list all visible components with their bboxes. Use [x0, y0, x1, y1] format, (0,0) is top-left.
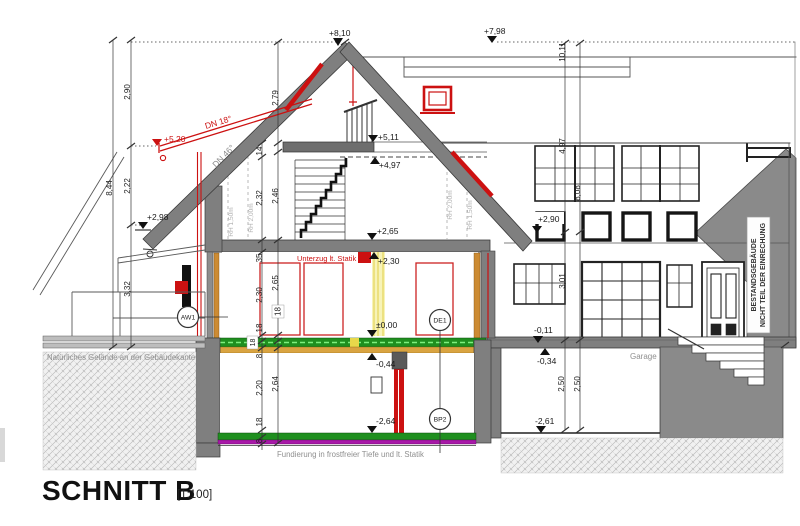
- marker-520: [152, 139, 162, 146]
- dim-chain-a-8: 8: [255, 438, 264, 443]
- unterzug-note: Unterzug lt. Statik: [297, 254, 356, 263]
- dim-total-height: 8,44: [105, 180, 114, 196]
- level-m011: -0,11: [534, 325, 553, 335]
- level-m261: -2,61: [535, 416, 555, 426]
- dim-bg-total2: 8,08: [573, 185, 582, 201]
- red-downpipe: [198, 152, 202, 338]
- dim-chain-b-2: 2,65: [271, 275, 280, 291]
- dim-bg-garage: 2,50: [557, 376, 566, 392]
- section-drawing: BESTANDSGEBÄUDE NICHT TEIL DER EINRECHUN…: [0, 0, 800, 526]
- dim-bg-total: 10,11: [558, 42, 567, 62]
- dim-bg-mid: 3,01: [558, 273, 567, 289]
- marker-298: [138, 222, 148, 229]
- dim-slab-box-b: 18: [274, 307, 283, 316]
- kg-left-wall: [196, 338, 220, 443]
- section-drawing-page: BESTANDSGEBÄUDE NICHT TEIL DER EINRECHUN…: [0, 0, 800, 526]
- level-290: +2,90: [538, 214, 560, 224]
- bestand-note-line2: NICHT TEIL DER EINRECHUNG: [760, 222, 767, 327]
- dim-wall-lower: 3,32: [123, 281, 132, 297]
- level-230: +2,30: [378, 256, 400, 266]
- dim-chain-b-1: 2,46: [271, 188, 280, 204]
- dim-bg-upper: 4,97: [558, 138, 567, 154]
- level-298: +2,98: [147, 212, 169, 222]
- level-810: +8,10: [329, 28, 351, 38]
- ground-hatch-left: [43, 352, 196, 470]
- eg-left-wall: [207, 252, 213, 338]
- marker-798: [487, 36, 497, 43]
- tag-de1-label: DE1: [433, 318, 446, 325]
- dim-chain-a-6: 2,20: [255, 380, 264, 396]
- headroom-left-150: RH 1,50m: [228, 207, 235, 236]
- kg-wall-niche: [371, 377, 382, 393]
- skylight-red: [421, 87, 454, 113]
- eg-left-wall-wood-layer: [214, 253, 219, 338]
- ground-slab: 18: [210, 336, 486, 353]
- dim-chain-a-4: 18: [255, 323, 264, 332]
- dim-bg-garage2: 2,50: [573, 376, 582, 392]
- level-m044: -0,44: [376, 359, 396, 369]
- existing-building-note: BESTANDSGEBÄUDE NICHT TEIL DER EINRECHUN…: [747, 217, 770, 333]
- neighbor-roof-lines: [33, 152, 124, 295]
- dim-chain-b-3: 2,64: [271, 376, 280, 392]
- terrace-slab-lower: [43, 343, 205, 348]
- drawing-title-block: SCHNITT B [1:100]: [42, 475, 212, 506]
- dim-chain-a-0: 14: [255, 146, 264, 155]
- attic-floor-slab: [208, 240, 490, 252]
- drawing-title: SCHNITT B: [42, 475, 196, 506]
- drawing-scale: [1:100]: [177, 489, 212, 501]
- dim-chain-a-1: 2,32: [255, 190, 264, 206]
- ground-hatch-right: [501, 438, 783, 473]
- level-m034: -0,34: [537, 356, 557, 366]
- dim-chain-a-7: 18: [255, 417, 264, 426]
- kg-right-wall: [474, 340, 491, 443]
- dim-roof-lower: 2,22: [123, 178, 132, 194]
- level-000: ±0,00: [376, 320, 397, 330]
- dim-chain-a-5: 8: [255, 353, 264, 358]
- dim-roof-upper: 2,90: [123, 84, 132, 100]
- tag-aw1-label: AW1: [181, 315, 196, 322]
- dim-chain-a-2: 35: [255, 253, 264, 262]
- existing-roofline: [357, 57, 796, 77]
- gelaende-note: Natürliches Gelände an der Gebäudekante: [47, 353, 195, 362]
- bestand-note-line1: BESTANDSGEBÄUDE: [750, 238, 758, 311]
- edge-stamp-sliver: [0, 428, 5, 462]
- headroom-right-200: RH 2,00m: [447, 190, 454, 219]
- garage-block: [487, 329, 796, 473]
- level-m264: -2,64: [376, 416, 396, 426]
- fundierung-note: Fundierung in frostfreier Tiefe und lt. …: [277, 450, 424, 459]
- tag-aw1: AW1: [178, 307, 229, 328]
- headroom-left-200: RH 2,00m: [248, 203, 255, 232]
- dim-chain-b-0: 2,79: [271, 90, 280, 106]
- dim-chain-a-3: 2,30: [255, 287, 264, 303]
- level-265: +2,65: [377, 226, 399, 236]
- level-520: +5,20: [164, 134, 186, 144]
- level-511: +5,11: [378, 132, 399, 142]
- slab-thickness-box-a: 18: [250, 339, 257, 347]
- level-798: +7,98: [484, 26, 506, 36]
- terrace-slab-upper: [43, 336, 205, 341]
- garage-label: Garage: [630, 352, 657, 361]
- level-497: +4,97: [379, 160, 401, 170]
- eg-right-wall-wood-layer: [474, 253, 480, 338]
- headroom-right-150: RH 1,50m: [467, 200, 474, 229]
- existing-entry-door: [702, 262, 744, 339]
- tag-bp2-label: BP2: [434, 417, 447, 424]
- main-house-section: 18: [143, 42, 532, 457]
- gallery-slab: [283, 142, 374, 152]
- unterzug-beam: [358, 252, 371, 263]
